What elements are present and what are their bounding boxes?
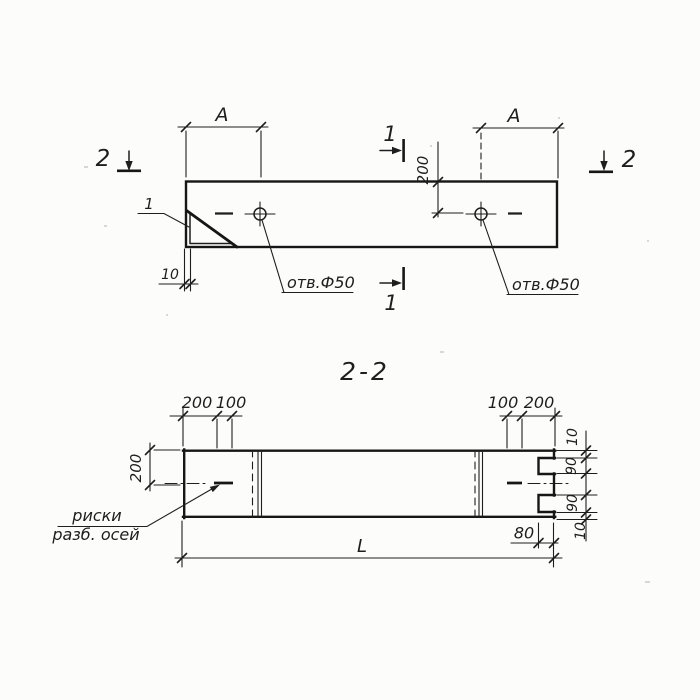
dim-right-90-top: 90 <box>564 457 580 475</box>
dim-length-lines <box>175 521 562 567</box>
dim-200-plan-lines <box>432 142 463 217</box>
section-view: 200 100 100 200 200 10 90 90 10 80 <box>51 393 597 567</box>
engineering-drawing: A A 200 10 2 2 <box>0 0 700 700</box>
section-1-top-label: 1 <box>383 122 396 146</box>
section-2-right-label: 2 <box>622 147 637 173</box>
section-hidden-lines <box>253 450 476 517</box>
drawing-sheet: A A 200 10 2 2 <box>0 0 700 700</box>
dim-right-10-top: 10 <box>565 428 581 446</box>
plan-beam-outline <box>186 182 557 248</box>
dim-top-left-group: 200 100 <box>170 393 246 448</box>
axis-label-line2: разб. осей <box>51 525 139 544</box>
dim-200-plan: 200 <box>414 142 463 217</box>
section-mark-2-right: 2 <box>589 147 636 173</box>
plan-view: A A 200 10 2 2 <box>96 104 637 315</box>
dim-a-left: A <box>178 104 268 177</box>
dim-a-right-lines <box>473 128 564 178</box>
detail-ref-leader <box>138 214 189 228</box>
dim-right-90-bottom: 90 <box>565 494 581 512</box>
hole-callout-left-label: отв.Ф50 <box>287 273 355 292</box>
dim-top-right-100: 100 <box>488 393 519 412</box>
detail-ref: 1 <box>138 195 189 227</box>
dim-a-left-lines <box>178 127 268 177</box>
dim-a-left-label: A <box>214 104 229 126</box>
section-title: 2-2 <box>340 357 390 386</box>
dim-notch-80-label: 80 <box>514 524 534 543</box>
dim-height-left-label: 200 <box>127 454 145 483</box>
section-inner-edges <box>258 450 483 517</box>
dim-top-right-200: 200 <box>524 393 555 412</box>
dim-length-L: L <box>175 521 562 567</box>
axis-marks-callout: риски разб. осей <box>51 485 220 545</box>
section-mark-2-left: 2 <box>96 146 141 172</box>
hole-callout-right-label: отв.Ф50 <box>512 275 580 294</box>
dim-200-plan-label: 200 <box>414 156 432 185</box>
axis-callout-arrowhead-icon <box>210 485 220 493</box>
hole-callout-right: отв.Ф50 <box>483 220 580 295</box>
dim-10-plan-label: 10 <box>161 267 179 283</box>
dim-length-label: L <box>357 536 367 557</box>
section-2-right-arrowhead-icon <box>600 161 607 171</box>
section-2-left-label: 2 <box>96 146 111 172</box>
dim-10-plan: 10 <box>159 249 198 291</box>
section-1-top-arrowhead-icon <box>392 147 402 154</box>
hole-callout-left: отв.Ф50 <box>262 220 355 293</box>
section-notches <box>539 458 556 512</box>
axis-label-line1: риски <box>71 506 121 525</box>
dim-top-left-200: 200 <box>182 393 213 412</box>
gusset-triangle-hypotenuse <box>187 211 238 248</box>
section-1-bottom-arrowhead-icon <box>392 279 402 286</box>
dim-top-left-100: 100 <box>216 393 247 412</box>
dim-notch-80: 80 <box>511 523 558 548</box>
section-mark-1-bottom: 1 <box>380 267 404 315</box>
dim-right-stack: 10 90 90 10 <box>557 428 597 541</box>
detail-ref-label: 1 <box>144 195 154 213</box>
plan-dim-ticks <box>180 123 563 289</box>
section-mark-1-top: 1 <box>380 122 404 162</box>
dim-a-right-label: A <box>506 105 521 127</box>
hole-centerlines <box>245 202 496 226</box>
dim-top-left-lines <box>170 408 242 448</box>
section-1-bottom-label: 1 <box>384 291 397 315</box>
dim-a-right: A <box>473 105 564 180</box>
dim-right-10-bottom: 10 <box>573 522 589 540</box>
section-beam-outline <box>183 450 555 519</box>
